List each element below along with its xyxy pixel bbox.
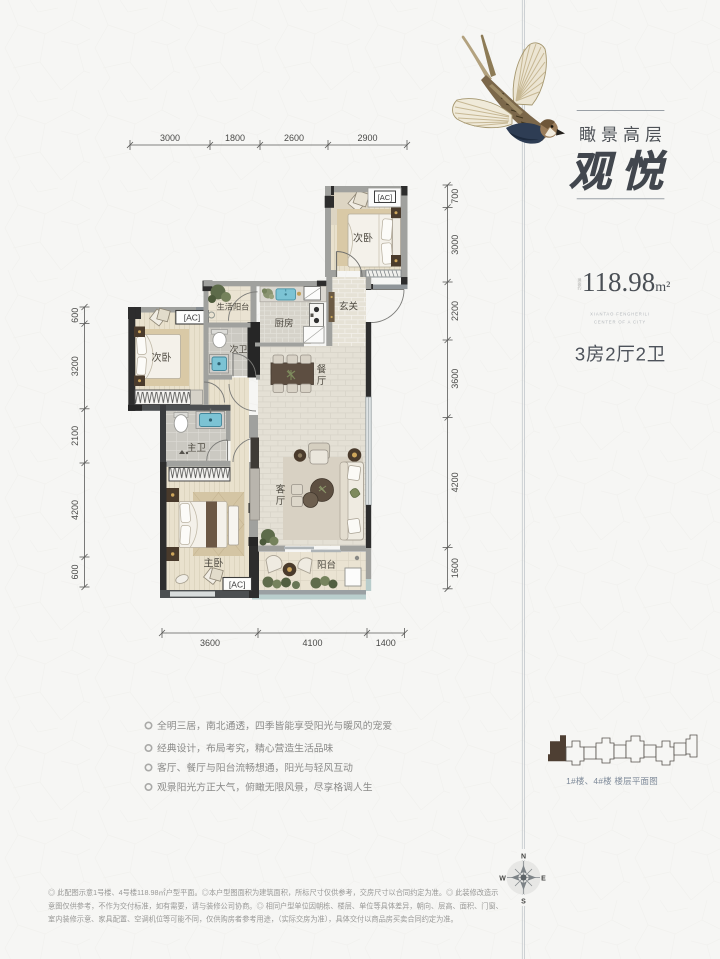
svg-text:S: S	[521, 899, 526, 906]
svg-text:4200: 4200	[450, 472, 460, 492]
svg-text:意图仅供参考，不作为交付标准，如有需要，请与装修公司协商。◎: 意图仅供参考，不作为交付标准，如有需要，请与装修公司协商。◎ 相同户型单位因朝栋…	[48, 902, 503, 911]
svg-text:[AC]: [AC]	[229, 579, 246, 589]
svg-text:CENTER OF A CITY: CENTER OF A CITY	[594, 320, 646, 325]
svg-text:600: 600	[70, 308, 80, 323]
svg-text:瞰景高层: 瞰景高层	[579, 126, 667, 145]
svg-text:2600: 2600	[284, 133, 304, 143]
svg-text:观景阳光方正大气，俯瞰无限风景，尽享格调人生: 观景阳光方正大气，俯瞰无限风景，尽享格调人生	[157, 781, 373, 794]
svg-text:3房2厅2卫: 3房2厅2卫	[575, 344, 666, 365]
svg-text:3000: 3000	[450, 235, 460, 255]
svg-text:4100: 4100	[302, 638, 322, 648]
svg-text:4200: 4200	[70, 500, 80, 520]
svg-text:厨房: 厨房	[274, 318, 293, 330]
svg-text:客厅、餐厅与阳台流畅想通，阳光与轻风互动: 客厅、餐厅与阳台流畅想通，阳光与轻风互动	[157, 761, 353, 774]
svg-text:2100: 2100	[70, 426, 80, 446]
svg-text:XIANTAO FENGHERILI: XIANTAO FENGHERILI	[590, 312, 650, 317]
svg-text:1400: 1400	[376, 638, 396, 648]
svg-text:W: W	[499, 876, 506, 883]
svg-text:观悦: 观悦	[569, 149, 673, 196]
svg-text:次卧: 次卧	[152, 351, 172, 364]
svg-text:N: N	[521, 854, 526, 861]
svg-text:主卧: 主卧	[204, 557, 224, 570]
svg-text:1800: 1800	[225, 133, 245, 143]
svg-text:1600: 1600	[450, 558, 460, 578]
svg-text:厅: 厅	[276, 496, 286, 507]
svg-text:3200: 3200	[70, 356, 80, 376]
svg-text:3000: 3000	[160, 133, 180, 143]
svg-text:全明三居，南北通透，四季皆能享受阳光与暖风的宠爱: 全明三居，南北通透，四季皆能享受阳光与暖风的宠爱	[157, 719, 392, 732]
svg-text:1#楼、4#楼 楼层平面图: 1#楼、4#楼 楼层平面图	[566, 776, 658, 786]
svg-text:次卧: 次卧	[353, 232, 373, 245]
svg-text:2200: 2200	[450, 301, 460, 321]
svg-text:3600: 3600	[200, 638, 220, 648]
svg-text:室内装修示意、家具配置、空调机位等可能不同，仅供购房者参考用: 室内装修示意、家具配置、空调机位等可能不同，仅供购房者参考用途，（实际交房为准）…	[48, 915, 458, 924]
svg-text:主卫: 主卫	[187, 442, 207, 454]
svg-text:E: E	[541, 876, 546, 883]
svg-text:经典设计，布局考究，精心营造生活品味: 经典设计，布局考究，精心营造生活品味	[157, 742, 334, 755]
svg-text:2900: 2900	[357, 133, 377, 143]
svg-text:餐: 餐	[317, 364, 327, 376]
svg-text:3600: 3600	[450, 369, 460, 389]
svg-text:玄关: 玄关	[339, 301, 359, 313]
svg-text:◎ 此配图示意1号楼、4号楼118.98㎡户型平面。◎本户型: ◎ 此配图示意1号楼、4号楼118.98㎡户型平面。◎本户型图面积为建筑面积，所…	[48, 888, 498, 897]
svg-text:[AC]: [AC]	[184, 313, 201, 323]
svg-text:生活阳台: 生活阳台	[217, 302, 250, 312]
svg-text:700: 700	[450, 189, 460, 204]
svg-text:客: 客	[276, 484, 286, 496]
svg-text:次卫: 次卫	[229, 344, 247, 355]
svg-text:600: 600	[70, 564, 80, 579]
svg-text:厅: 厅	[317, 376, 327, 387]
svg-text:阳台: 阳台	[317, 559, 336, 571]
svg-text:[AC]: [AC]	[378, 193, 393, 202]
